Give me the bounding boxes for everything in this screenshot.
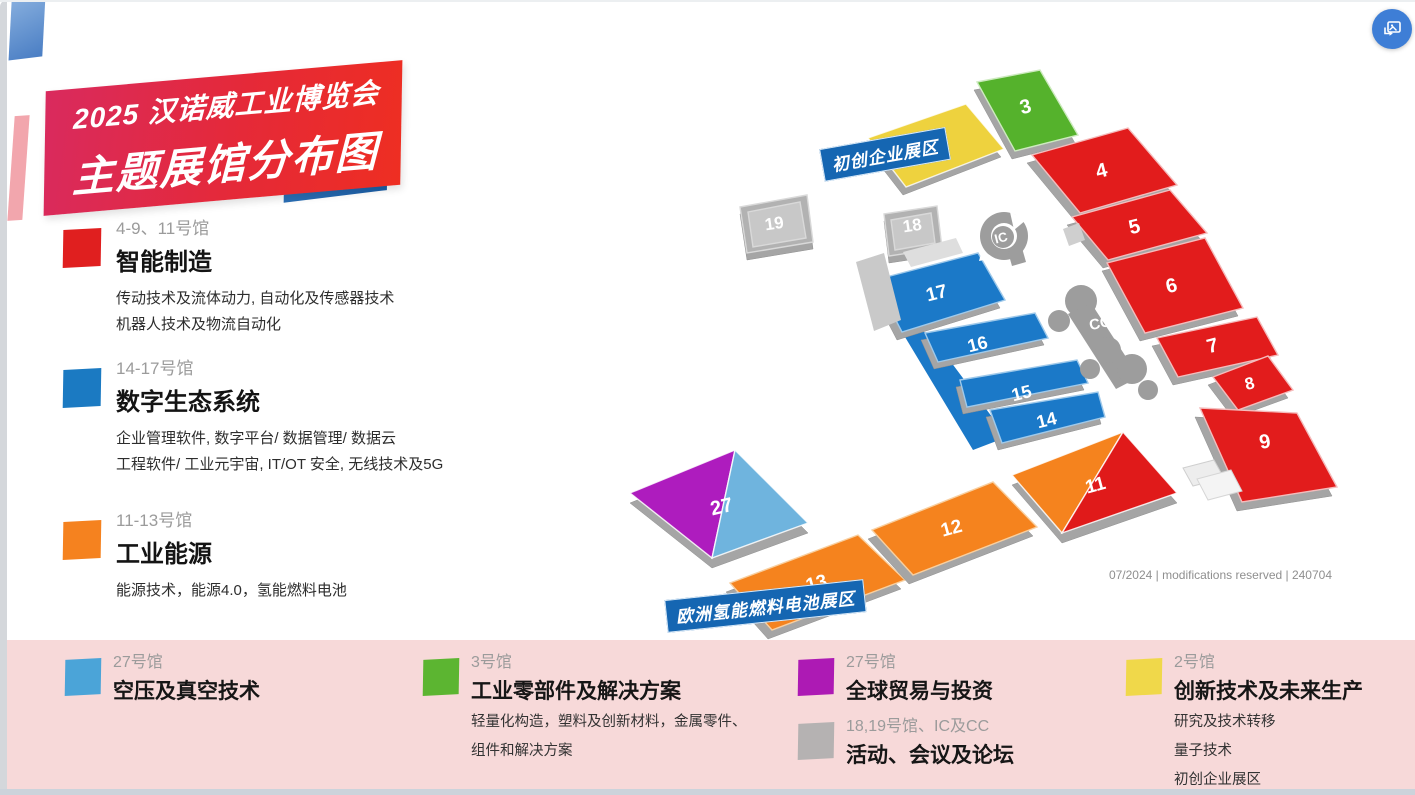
bottom-legend-item-0: 27号馆空压及真空技术 bbox=[65, 648, 260, 705]
window-frame-top bbox=[0, 0, 1415, 2]
legend-color-swatch bbox=[65, 658, 102, 696]
window-frame-bottom bbox=[0, 789, 1415, 795]
legend-title: 创新技术及未来生产 bbox=[1174, 675, 1363, 705]
bottom-legend-text: 3号馆工业零部件及解决方案轻量化构造，塑料及创新材料，金属零件、组件和解决方案 bbox=[471, 648, 747, 763]
legend-title: 工业零部件及解决方案 bbox=[471, 675, 747, 705]
bottom-legend-item-2: 27号馆全球贸易与投资 bbox=[798, 648, 993, 705]
legend-title: 活动、会议及论坛 bbox=[846, 739, 1014, 769]
legend-color-swatch bbox=[1126, 658, 1163, 696]
legend-description-line: 研究及技术转移 bbox=[1174, 711, 1363, 734]
watermark-text: 07/2024 | modifications reserved | 24070… bbox=[1040, 568, 1332, 582]
hall-19-label: 19 bbox=[764, 213, 785, 234]
legend-hall-number: 18,19号馆、IC及CC bbox=[846, 712, 1014, 736]
legend-description-line: 轻量化构造，塑料及创新材料，金属零件、 bbox=[471, 711, 747, 734]
legend-title: 空压及真空技术 bbox=[113, 675, 260, 705]
map-structure-18 bbox=[1138, 380, 1158, 400]
map-structure-17 bbox=[1117, 354, 1147, 384]
hall-18-label: 18 bbox=[902, 215, 923, 236]
map-structure-16 bbox=[1080, 359, 1100, 379]
legend-title: 全球贸易与投资 bbox=[846, 675, 993, 705]
bottom-legend-text: 2号馆创新技术及未来生产研究及技术转移量子技术初创企业展区 bbox=[1174, 648, 1363, 792]
screenshot-viewport: 2025 汉诺威工业博览会 主题展馆分布图 4-9、11号馆智能制造传动技术及流… bbox=[0, 0, 1415, 795]
bottom-legend-item-3: 18,19号馆、IC及CC活动、会议及论坛 bbox=[798, 712, 1014, 769]
map-structure-15 bbox=[1095, 337, 1121, 363]
bottom-legend-item-4: 2号馆创新技术及未来生产研究及技术转移量子技术初创企业展区 bbox=[1126, 648, 1363, 792]
legend-description-line: 量子技术 bbox=[1174, 740, 1363, 763]
legend-hall-number: 27号馆 bbox=[846, 648, 993, 672]
bottom-legend-item-1: 3号馆工业零部件及解决方案轻量化构造，塑料及创新材料，金属零件、组件和解决方案 bbox=[423, 648, 747, 763]
map-structure-13 bbox=[1048, 310, 1070, 332]
legend-hall-number: 27号馆 bbox=[113, 648, 260, 672]
open-image-preview-button[interactable] bbox=[1372, 9, 1412, 49]
legend-color-swatch bbox=[423, 658, 460, 696]
legend-hall-number: 3号馆 bbox=[471, 648, 747, 672]
bottom-legend-text: 27号馆全球贸易与投资 bbox=[846, 648, 993, 705]
bottom-legend-text: 27号馆空压及真空技术 bbox=[113, 648, 260, 705]
bottom-legend-text: 18,19号馆、IC及CC活动、会议及论坛 bbox=[846, 712, 1014, 769]
legend-description-line: 组件和解决方案 bbox=[471, 740, 747, 763]
legend-color-swatch bbox=[798, 658, 835, 696]
legend-color-swatch bbox=[798, 722, 835, 760]
window-frame-left bbox=[0, 0, 7, 795]
image-arrow-icon bbox=[1381, 18, 1403, 40]
poster-stage: 2025 汉诺威工业博览会 主题展馆分布图 4-9、11号馆智能制造传动技术及流… bbox=[0, 0, 1415, 795]
legend-hall-number: 2号馆 bbox=[1174, 648, 1363, 672]
